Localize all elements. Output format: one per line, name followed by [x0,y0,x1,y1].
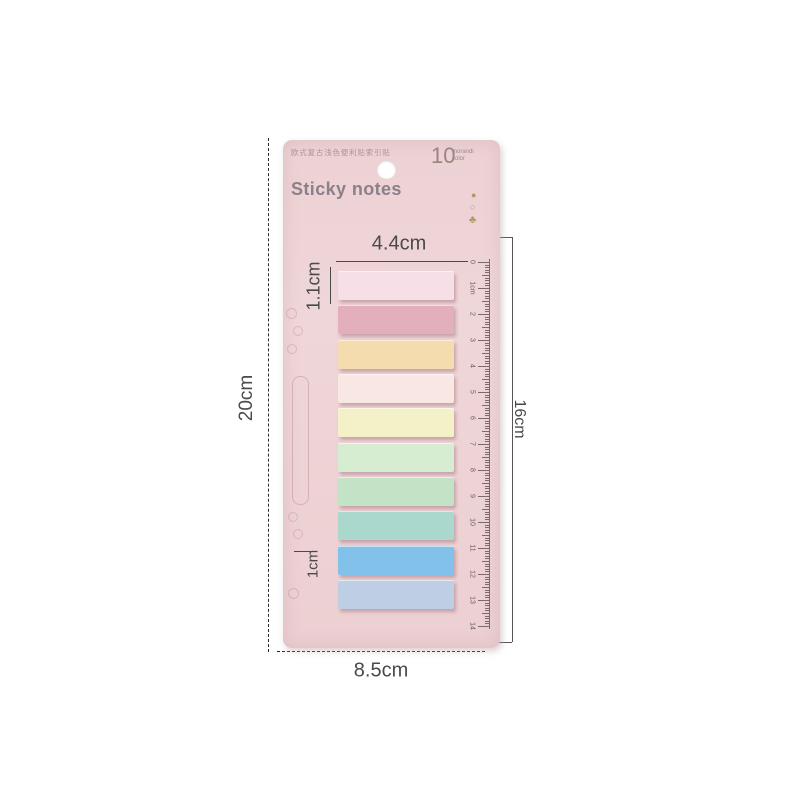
strip-width-label: 4.4cm [372,233,426,256]
color-count-caption-line2: color [452,156,474,163]
strips-span-top-cap [499,237,512,238]
strip-width-dimension-line [336,261,468,262]
strips-span-dimension-line [512,237,513,642]
embossed-flower [287,344,297,354]
embossed-flower [286,308,297,319]
chinese-product-title: 欧式复古浅色便利贴索引贴 [291,147,391,158]
card-width-label: 8.5cm [354,660,408,683]
card-width-dimension-line [277,651,485,652]
color-count-caption-line1: morandi [452,149,474,156]
hang-hole [377,160,396,179]
embossed-slot-outline [292,376,309,505]
color-count-caption: morandi color [452,149,474,163]
ring-icon: ○ [470,202,475,212]
strips-span-label: 16cm [510,399,528,438]
product-dimension-image: 20cm 8.5cm 16cm 欧式复古浅色便利贴索引贴 Sticky note… [0,0,800,800]
product-title: Sticky notes [291,179,402,200]
embossed-flower [293,326,303,336]
strips-span-bottom-cap [499,642,512,643]
card-height-label: 20cm [236,375,258,421]
embossed-flower [288,588,299,599]
strip-height-label: 1.1cm [304,261,325,310]
embossed-flower [288,512,298,522]
plant-icon: ♣ [469,214,476,226]
card-height-dimension-line [268,138,269,652]
bottom-gap-label: 1cm [305,550,322,578]
gold-dot-icon: ● [471,190,476,200]
embossed-flower [293,529,303,539]
strip-height-dimension-line [330,267,331,304]
